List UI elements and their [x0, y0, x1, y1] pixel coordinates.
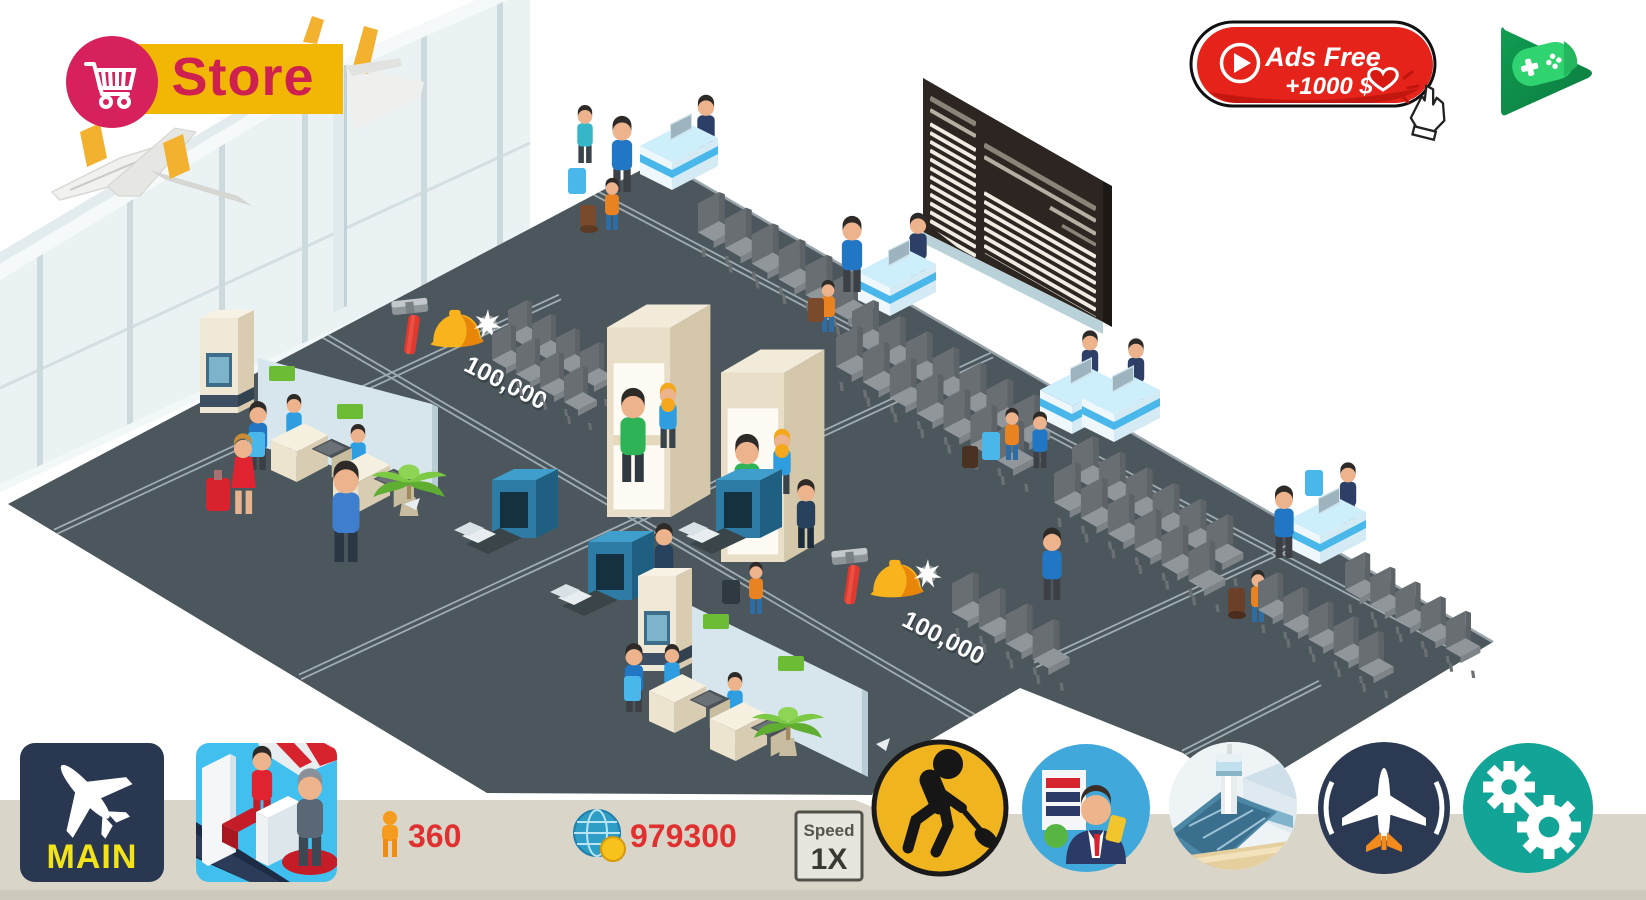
svg-text:+1000 $: +1000 $: [1285, 73, 1373, 100]
svg-text:1X: 1X: [811, 843, 848, 876]
svg-text:Speed: Speed: [803, 821, 854, 840]
svg-text:979300: 979300: [630, 818, 737, 854]
svg-text:MAIN: MAIN: [47, 838, 138, 876]
svg-text:360: 360: [408, 818, 461, 854]
svg-text:Store: Store: [171, 47, 314, 107]
svg-text:Ads Free: Ads Free: [1264, 42, 1381, 72]
